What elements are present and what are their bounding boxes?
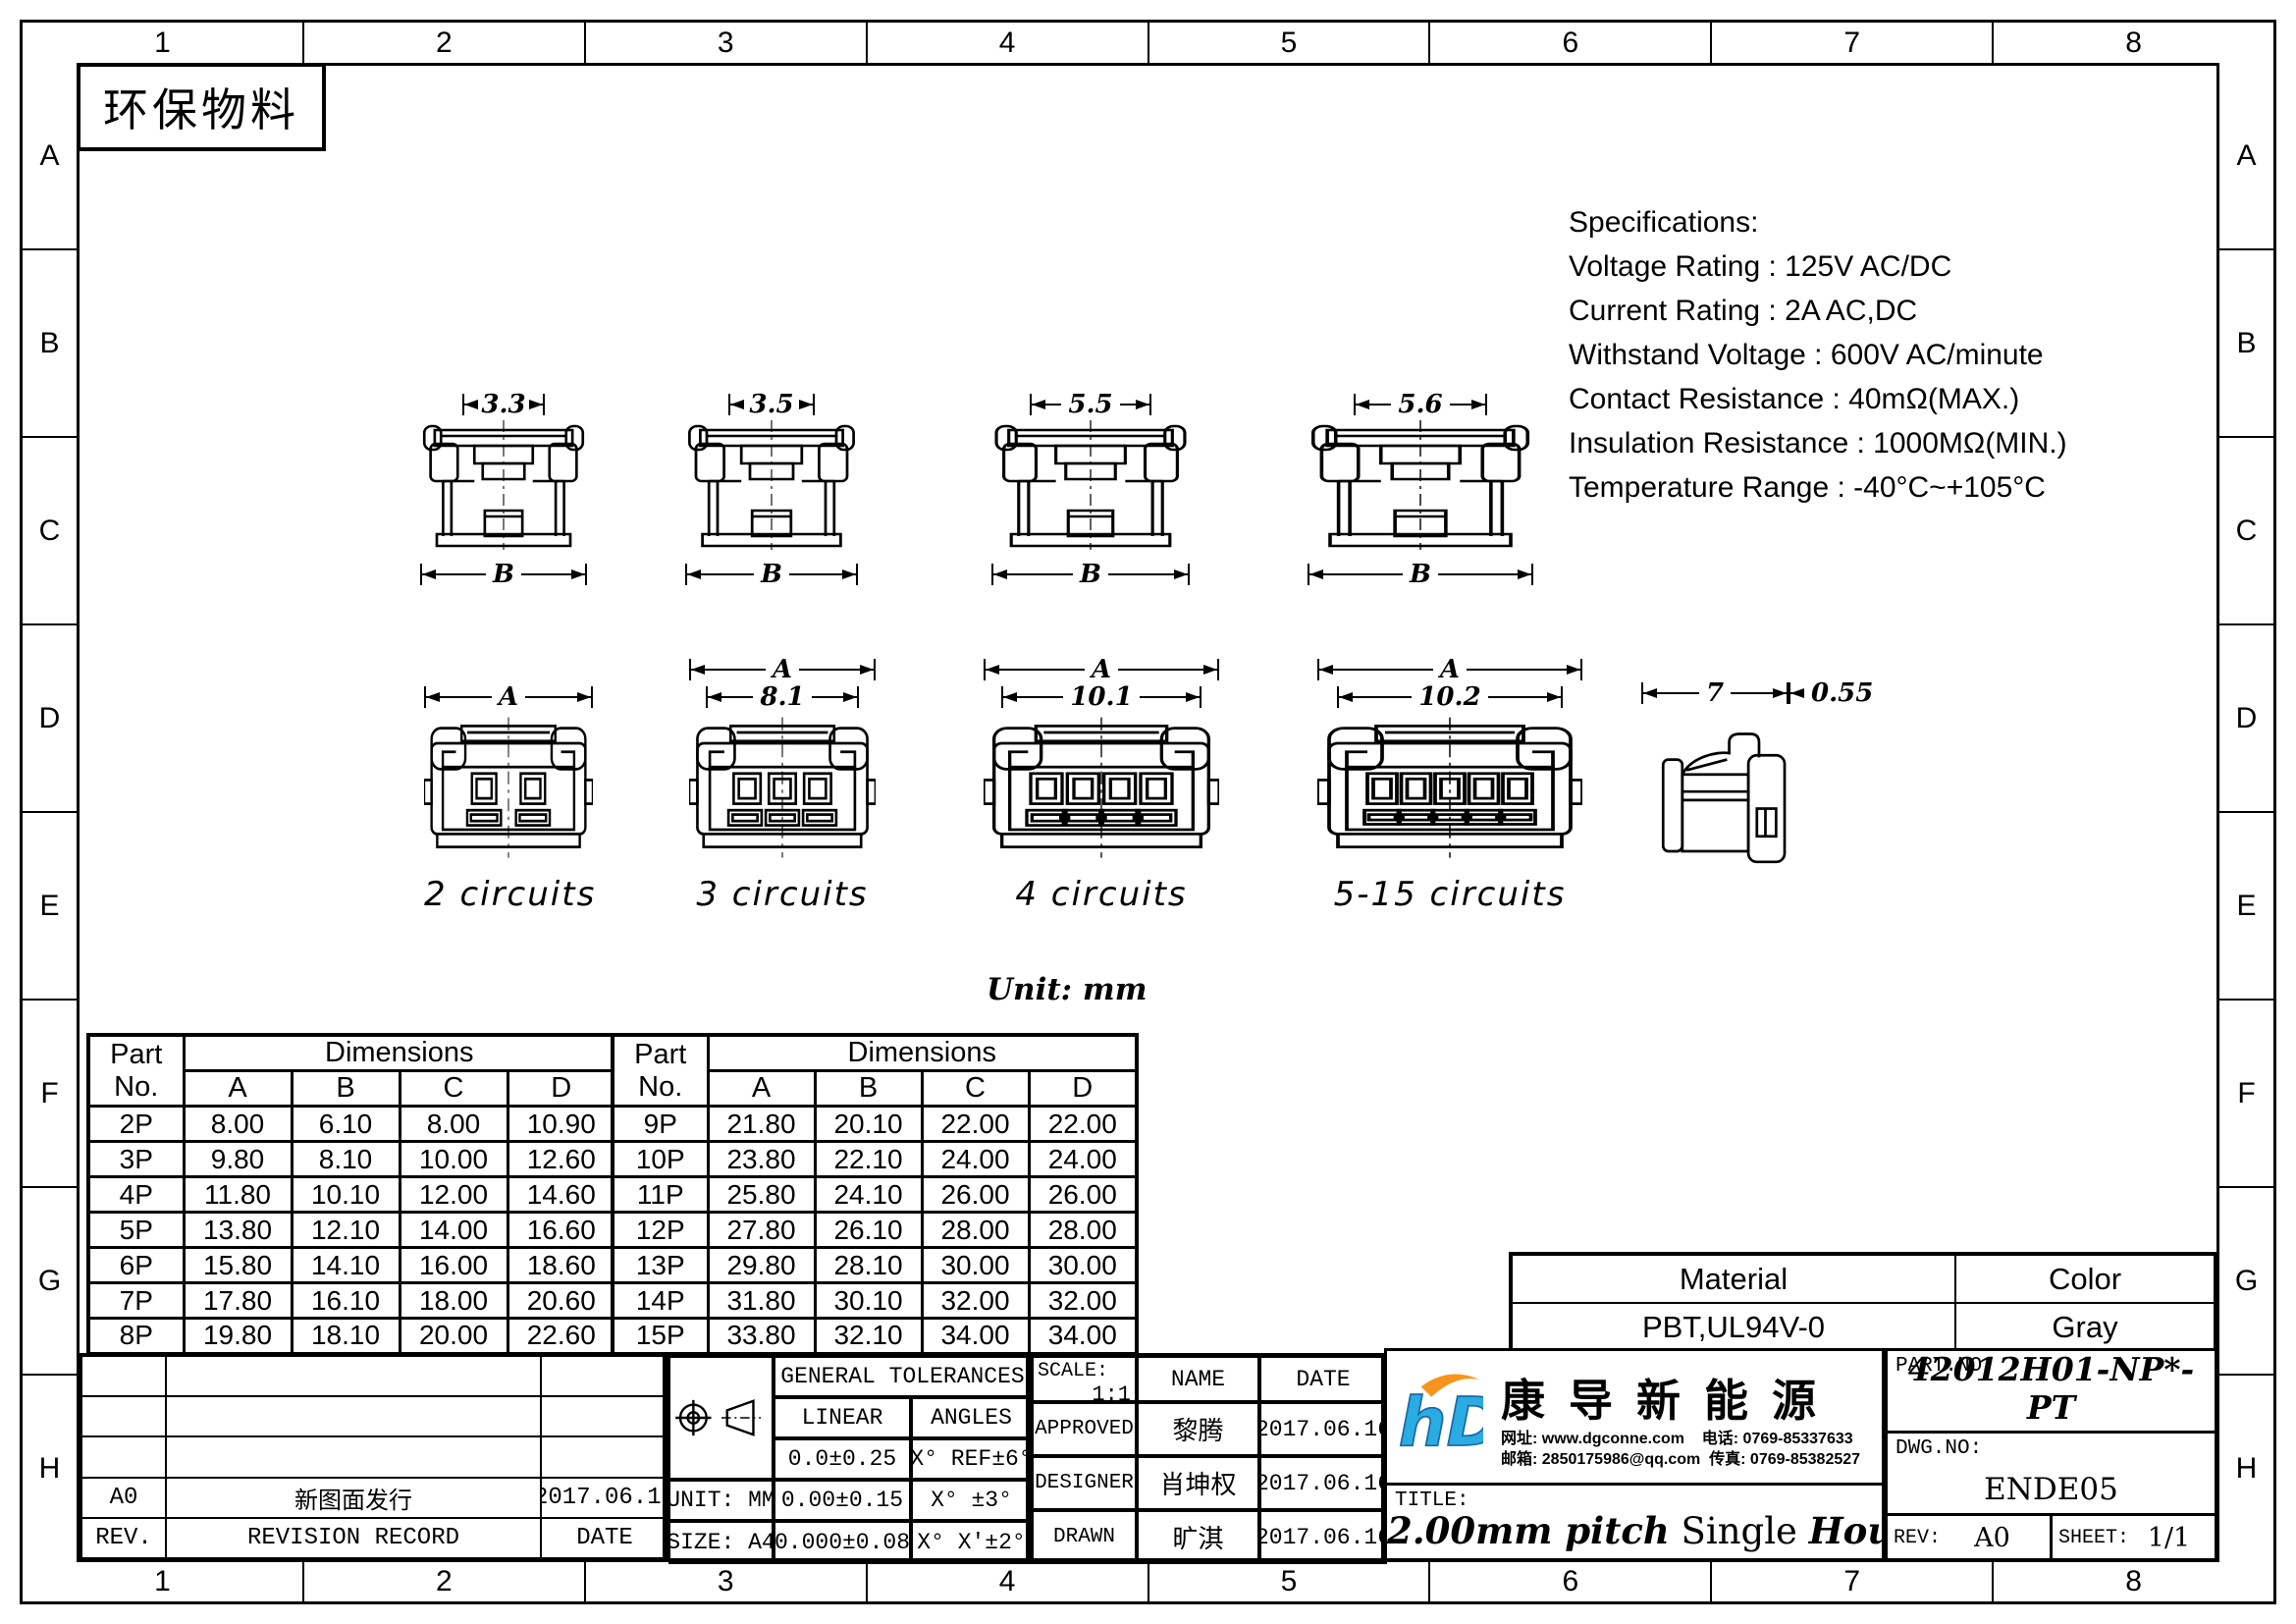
dim-arrow <box>1308 564 1309 585</box>
zone-label: 7 <box>1712 1561 1994 1601</box>
top-view-3ckt: 3.5 B <box>685 391 858 588</box>
approved-label: APPROVED <box>1032 1402 1137 1456</box>
zone-strip-top: 1 2 3 4 5 6 7 8 <box>23 23 2273 63</box>
dim-arrow <box>1317 659 1319 680</box>
projection-symbol-cell <box>668 1356 774 1480</box>
approved-name: 黎腾 <box>1137 1402 1259 1456</box>
zone-label: 4 <box>868 1561 1149 1601</box>
zone-label: E <box>2219 813 2273 1001</box>
col-header: D <box>1029 1071 1137 1107</box>
title-part-pitch: 2.00mm pitch <box>1387 1509 1670 1552</box>
table-row: 10P23.8022.1024.0024.00 <box>613 1142 1137 1177</box>
dim-line: A <box>424 683 593 711</box>
dim-arrow <box>591 686 593 708</box>
table-cell: 13P <box>613 1248 708 1283</box>
table-cell: 13.80 <box>184 1213 292 1248</box>
table-cell: 32.10 <box>815 1319 922 1354</box>
connector-top-view-drawing <box>685 418 858 556</box>
dim-arrow <box>874 659 876 680</box>
table-cell: 34.00 <box>922 1319 1029 1354</box>
connector-front-view-drawing <box>984 711 1219 862</box>
dim-label: A <box>492 682 525 712</box>
title-row: TITLE: 2.00mm pitch Single Housing <box>1387 1486 1882 1558</box>
rev-entry-rev: A0 <box>81 1478 166 1518</box>
col-header: B <box>292 1071 400 1107</box>
company-name: 康导新能源 <box>1501 1365 1860 1429</box>
rev-value: A0 <box>1974 1523 2010 1553</box>
connector-top-view-drawing <box>1308 418 1533 556</box>
table-cell: 8.00 <box>400 1107 507 1142</box>
view-caption: 5-15 circuits <box>1317 875 1582 914</box>
company-logo-icon: hD <box>1397 1368 1483 1466</box>
dim-line-seg <box>1309 573 1403 575</box>
color-value: Gray <box>1955 1303 2215 1351</box>
specifications-title: Specifications: <box>1569 200 2256 244</box>
partno-block: PART.NO: 42012H01-NP*-PT DWG.NO: ENDE05 … <box>1885 1348 2217 1561</box>
view-caption: 2 circuits <box>424 875 593 914</box>
table-cell: 14.60 <box>507 1177 615 1213</box>
table-row: 13P29.8028.1030.0030.00 <box>613 1248 1137 1283</box>
zone-label: 5 <box>1149 1561 1431 1601</box>
side-view: 7 0.55 <box>1641 679 1887 864</box>
col-header: D <box>507 1071 615 1107</box>
view-caption: 4 circuits <box>984 875 1219 914</box>
table-cell: 24.10 <box>815 1177 922 1213</box>
unit-cell: UNIT: MM <box>668 1480 774 1521</box>
dim-label: B <box>486 560 521 589</box>
table-cell: 11.80 <box>184 1177 292 1213</box>
dim-arrow <box>1580 659 1582 680</box>
dim-arrow <box>1217 659 1219 680</box>
spec-line: Temperature Range : -40°C~+105°C <box>1569 465 2256 510</box>
table-cell: 5P <box>88 1213 184 1248</box>
table-cell: 16.60 <box>507 1213 615 1248</box>
rev-entry-desc: 新图面发行 <box>166 1478 541 1518</box>
company-phone: 电话: 0769-85337633 <box>1702 1431 1853 1447</box>
zone-label: 3 <box>586 1561 868 1601</box>
table-cell: 8.10 <box>292 1142 400 1177</box>
size-cell: SIZE: A4 <box>668 1521 774 1564</box>
table-cell: 12.10 <box>292 1213 400 1248</box>
table-cell: 10.10 <box>292 1177 400 1213</box>
table-header-part: PartNo. <box>613 1035 708 1107</box>
zone-label: 8 <box>1994 1561 2273 1601</box>
zone-label: 2 <box>304 23 586 63</box>
table-cell: 32.00 <box>1029 1283 1137 1319</box>
table-row: 11P25.8024.1026.0026.00 <box>613 1177 1137 1213</box>
rev-footer-date: DATE <box>541 1518 668 1558</box>
dim-label: 5.5 <box>1061 390 1119 419</box>
table-cell: 4P <box>88 1177 184 1213</box>
dim-label: B <box>1073 560 1108 589</box>
table-cell: 16.10 <box>292 1283 400 1319</box>
dim-label: B <box>1403 560 1438 589</box>
dim-arrow <box>1561 686 1563 708</box>
color-header: Color <box>1955 1255 2215 1303</box>
table-cell: 11P <box>613 1177 708 1213</box>
table-cell: 8P <box>88 1319 184 1354</box>
dim-arrow <box>1641 682 1643 704</box>
projection-symbol-icon <box>674 1397 769 1438</box>
dim-arrow <box>1354 394 1356 415</box>
front-view-2ckt: A 2 circuits <box>424 656 593 914</box>
table-cell: 16.00 <box>400 1248 507 1283</box>
front-view-5-15ckt: A 10.2 <box>1317 656 1582 914</box>
dim-line: 7 <box>1641 679 1789 707</box>
linear-tol: 0.00±0.15 <box>774 1480 911 1521</box>
material-color-table: Material Color PBT,UL94V-0 Gray <box>1509 1252 2217 1354</box>
dim-line-seg <box>986 669 1085 671</box>
eco-material-stamp: 环保物料 <box>77 63 326 151</box>
sheet-label: SHEET: <box>2058 1527 2129 1549</box>
rev-section: REV: A0 <box>1888 1516 2053 1559</box>
dim-arrow <box>1001 686 1003 708</box>
table-cell: 6P <box>88 1248 184 1283</box>
angle-tol: X° REF±6° <box>911 1438 1032 1480</box>
zone-label: 8 <box>1994 23 2273 63</box>
table-header-dimensions: Dimensions <box>184 1035 615 1071</box>
col-header: B <box>815 1071 922 1107</box>
dim-label: A <box>766 655 799 684</box>
table-cell: 22.00 <box>922 1107 1029 1142</box>
connector-top-view-drawing <box>991 418 1190 556</box>
scale-value: 1:1 <box>1092 1382 1131 1402</box>
table-cell: 9P <box>613 1107 708 1142</box>
dim-line: 10.2 <box>1337 683 1563 711</box>
drawn-label: DRAWN <box>1032 1510 1137 1564</box>
zone-label: 1 <box>23 1561 304 1601</box>
table-cell: 20.00 <box>400 1319 507 1354</box>
dim-line-seg <box>1467 669 1580 671</box>
angles-header: ANGLES <box>911 1397 1032 1438</box>
zone-strip-bottom: 1 2 3 4 5 6 7 8 <box>23 1561 2273 1601</box>
table-cell: 33.80 <box>708 1319 815 1354</box>
table-cell: 18.00 <box>400 1283 507 1319</box>
zone-label: H <box>23 1376 77 1561</box>
dim-arrow <box>857 686 859 708</box>
table-row: 14P31.8030.1032.0032.00 <box>613 1283 1137 1319</box>
spec-line: Withstand Voltage : 600V AC/minute <box>1569 333 2256 377</box>
date-header: DATE <box>1259 1356 1387 1402</box>
dim-line: A <box>1317 656 1582 683</box>
table-cell: 20.60 <box>507 1283 615 1319</box>
table-cell: 7P <box>88 1283 184 1319</box>
part-label: Part <box>110 1039 162 1070</box>
table-cell: 12.60 <box>507 1142 615 1177</box>
dim-arrow <box>1337 686 1339 708</box>
partno-value: 42012H01-NP*-PT <box>1888 1350 2215 1427</box>
connector-side-view-drawing <box>1641 715 1828 864</box>
table-row: 7P17.8016.1018.0020.60 <box>88 1283 615 1319</box>
approval-block: SCALE: 1:1 NAME DATE APPROVED 黎腾 2017.06… <box>1029 1353 1384 1561</box>
table-cell: 22.60 <box>507 1319 615 1354</box>
dim-label: 8.1 <box>753 682 811 712</box>
zone-label: 6 <box>1430 23 1712 63</box>
rev-footer-rev: REV. <box>81 1518 166 1558</box>
col-header: A <box>184 1071 292 1107</box>
dim-line: A <box>689 656 876 683</box>
dim-arrow <box>813 394 815 415</box>
dwgno-label: DWG.NO: <box>1896 1437 1982 1460</box>
linear-tol: 0.000±0.08 <box>774 1521 911 1564</box>
rev-cell-empty <box>81 1436 166 1477</box>
col-header: C <box>400 1071 507 1107</box>
designer-name: 肖坤权 <box>1137 1456 1259 1510</box>
table-cell: 10.90 <box>507 1107 615 1142</box>
designer-label: DESIGNER <box>1032 1456 1137 1510</box>
connector-front-view-drawing <box>424 711 593 862</box>
table-header-dimensions: Dimensions <box>708 1035 1137 1071</box>
table-cell: 34.00 <box>1029 1319 1137 1354</box>
dim-line-seg <box>1118 669 1217 671</box>
spec-line: Contact Resistance : 40mΩ(MAX.) <box>1569 377 2256 421</box>
table-cell: 31.80 <box>708 1283 815 1319</box>
table-cell: 6.10 <box>292 1107 400 1142</box>
dim-arrow <box>1485 394 1487 415</box>
table-cell: 26.00 <box>1029 1177 1137 1213</box>
dim-arrow <box>543 394 545 415</box>
company-contact-line2: 邮箱: 2850175986@qq.com 传真: 0769-85382527 <box>1501 1449 1860 1470</box>
table-cell: 30.10 <box>815 1283 922 1319</box>
dim-arrow <box>1149 394 1151 415</box>
designer-date: 2017.06.16 <box>1259 1456 1387 1510</box>
rev-cell-empty <box>81 1356 166 1396</box>
rev-cell-empty <box>541 1356 668 1396</box>
dim-line: B <box>685 561 858 588</box>
table-row: 3P9.808.1010.0012.60 <box>88 1142 615 1177</box>
table-cell: 23.80 <box>708 1142 815 1177</box>
dimension-table-right: PartNo. Dimensions A B C D 9P21.8020.102… <box>611 1033 1139 1356</box>
dim-label: 3.5 <box>742 390 800 419</box>
zone-label: 7 <box>1712 23 1994 63</box>
zone-label: H <box>2219 1376 2273 1561</box>
dim-line: 3.5 <box>728 391 815 418</box>
spec-line: Current Rating : 2A AC,DC <box>1569 289 2256 333</box>
dim-line-seg <box>1319 669 1433 671</box>
table-cell: 2P <box>88 1107 184 1142</box>
dim-line: 0.55 <box>1789 679 1885 707</box>
table-cell: 17.80 <box>184 1283 292 1319</box>
dwgno-section: DWG.NO: ENDE05 <box>1888 1434 2215 1516</box>
table-row: 6P15.8014.1016.0018.60 <box>88 1248 615 1283</box>
table-row: 4P11.8010.1012.0014.60 <box>88 1177 615 1213</box>
dim-arrow <box>420 564 422 585</box>
dimension-table-left: PartNo. Dimensions A B C D 2P8.006.108.0… <box>86 1033 617 1356</box>
zone-label: 4 <box>868 23 1149 63</box>
dim-line: 5.6 <box>1354 391 1487 418</box>
dim-label: 5.6 <box>1391 390 1449 419</box>
dim-label: 10.2 <box>1412 682 1487 712</box>
zone-label: 3 <box>586 23 868 63</box>
rev-cell-empty <box>541 1436 668 1477</box>
table-cell: 30.00 <box>922 1248 1029 1283</box>
view-caption: 3 circuits <box>689 875 876 914</box>
zone-label: A <box>23 63 77 250</box>
table-cell: 28.00 <box>922 1213 1029 1248</box>
table-cell: 19.80 <box>184 1319 292 1354</box>
table-row: 5P13.8012.1014.0016.60 <box>88 1213 615 1248</box>
top-view-5-15ckt: 5.6 B <box>1308 391 1533 588</box>
zone-label: 6 <box>1430 1561 1712 1601</box>
table-row: 12P27.8026.1028.0028.00 <box>613 1213 1137 1248</box>
angle-tol: X° ±3° <box>911 1480 1032 1521</box>
no-label: No. <box>114 1071 158 1103</box>
table-cell: 12P <box>613 1213 708 1248</box>
dim-line: B <box>1308 561 1533 588</box>
linear-tol: 0.0±0.25 <box>774 1438 911 1480</box>
table-cell: 3P <box>88 1142 184 1177</box>
rev-cell-empty <box>166 1396 541 1436</box>
dim-arrow <box>984 659 986 680</box>
tolerance-header: GENERAL TOLERANCES <box>774 1356 1032 1397</box>
dim-arrow <box>585 564 587 585</box>
dim-arrow <box>1188 564 1190 585</box>
top-view-2ckt: 3.3 B <box>420 391 587 588</box>
front-view-4ckt: A 10.1 <box>984 656 1219 914</box>
dim-line: B <box>420 561 587 588</box>
connector-top-view-drawing <box>420 418 587 556</box>
table-cell: 26.00 <box>922 1177 1029 1213</box>
dim-arrow <box>462 394 464 415</box>
table-cell: 18.60 <box>507 1248 615 1283</box>
table-cell: 14.00 <box>400 1213 507 1248</box>
sheet-section: SHEET: 1/1 <box>2053 1516 2215 1559</box>
zone-label: G <box>2219 1188 2273 1376</box>
table-cell: 24.00 <box>922 1142 1029 1177</box>
material-value: PBT,UL94V-0 <box>1512 1303 1955 1351</box>
zone-label: B <box>23 250 77 438</box>
sheet-value: 1/1 <box>2148 1523 2190 1553</box>
dim-line: 3.3 <box>462 391 545 418</box>
dim-line: 8.1 <box>706 683 859 711</box>
company-website: 网址: www.dgconne.com <box>1501 1431 1684 1447</box>
table-cell: 14.10 <box>292 1248 400 1283</box>
table-cell: 22.10 <box>815 1142 922 1177</box>
table-cell: 29.80 <box>708 1248 815 1283</box>
dim-label: 3.3 <box>474 390 532 419</box>
scale-label: SCALE: <box>1038 1360 1108 1382</box>
zone-strip-left: A B C D E F G H <box>23 63 77 1561</box>
table-cell: 27.80 <box>708 1213 815 1248</box>
table-cell: 14P <box>613 1283 708 1319</box>
linear-header: LINEAR <box>774 1397 911 1438</box>
top-view-4ckt: 5.5 B <box>991 391 1190 588</box>
drawn-name: 旷淇 <box>1137 1510 1259 1564</box>
dwgno-value: ENDE05 <box>1888 1472 2215 1507</box>
table-cell: 20.10 <box>815 1107 922 1142</box>
table-header-part: PartNo. <box>88 1035 184 1107</box>
zone-label: 2 <box>304 1561 586 1601</box>
zone-label: F <box>2219 1001 2273 1188</box>
dim-line: 10.1 <box>1001 683 1201 711</box>
dim-line: B <box>991 561 1190 588</box>
table-cell: 18.10 <box>292 1319 400 1354</box>
dim-line: A <box>984 656 1219 683</box>
table-cell: 25.80 <box>708 1177 815 1213</box>
table-cell: 10P <box>613 1142 708 1177</box>
spec-line: Voltage Rating : 125V AC/DC <box>1569 244 2256 289</box>
title-part-single: Single <box>1682 1510 1797 1552</box>
table-cell: 12.00 <box>400 1177 507 1213</box>
table-cell: 15.80 <box>184 1248 292 1283</box>
rev-cell-empty <box>166 1436 541 1477</box>
tolerance-block: UNIT: MM SIZE: A4 GENERAL TOLERANCES LIN… <box>666 1353 1029 1561</box>
table-row: 9P21.8020.1022.0022.00 <box>613 1107 1137 1142</box>
dim-arrow <box>424 686 426 708</box>
scale-cell: SCALE: 1:1 <box>1032 1356 1137 1402</box>
table-cell: 10.00 <box>400 1142 507 1177</box>
zone-label: 5 <box>1149 23 1431 63</box>
dim-label: A <box>1085 655 1118 684</box>
dim-arrow <box>728 394 730 415</box>
dim-arrow <box>856 564 858 585</box>
part-label: Part <box>634 1039 686 1070</box>
dim-arrow <box>991 564 993 585</box>
rev-cell-empty <box>541 1396 668 1436</box>
table-cell: 8.00 <box>184 1107 292 1142</box>
drawing-sheet: 1 2 3 4 5 6 7 8 1 2 3 4 5 6 7 8 A B C D … <box>0 0 2296 1624</box>
dim-label: 10.1 <box>1063 682 1139 712</box>
dim-arrow <box>685 564 687 585</box>
dim-label: A <box>1433 655 1467 684</box>
dim-arrow <box>1789 682 1790 704</box>
no-label: No. <box>638 1071 682 1103</box>
company-title-block: hD 康导新能源 网址: www.dgconne.com 电话: 0769-85… <box>1384 1348 1885 1561</box>
dim-label: B <box>754 560 789 589</box>
name-header: NAME <box>1137 1356 1259 1402</box>
table-row: 8P19.8018.1020.0022.60 <box>88 1319 615 1354</box>
table-cell: 9.80 <box>184 1142 292 1177</box>
dim-arrow <box>1531 564 1533 585</box>
table-cell: 26.10 <box>815 1213 922 1248</box>
table-cell: 24.00 <box>1029 1142 1137 1177</box>
connector-front-view-drawing <box>1317 711 1582 862</box>
rev-cell-empty <box>166 1356 541 1396</box>
rev-label: REV: <box>1894 1527 1941 1549</box>
rev-sheet-row: REV: A0 SHEET: 1/1 <box>1888 1516 2215 1559</box>
svg-text:hD: hD <box>1399 1383 1483 1462</box>
rev-entry-date: 2017.06.16 <box>541 1478 668 1518</box>
table-cell: 22.00 <box>1029 1107 1137 1142</box>
specifications-block: Specifications: Voltage Rating : 125V AC… <box>1569 200 2256 510</box>
material-header: Material <box>1512 1255 1955 1303</box>
zone-label: G <box>23 1188 77 1376</box>
table-cell: 21.80 <box>708 1107 815 1142</box>
company-fax: 传真: 0769-85382527 <box>1709 1451 1860 1468</box>
zone-label: 1 <box>23 23 304 63</box>
table-cell: 28.10 <box>815 1248 922 1283</box>
company-email: 邮箱: 2850175986@qq.com <box>1501 1451 1700 1468</box>
company-banner: hD 康导新能源 网址: www.dgconne.com 电话: 0769-85… <box>1387 1351 1882 1486</box>
drawn-date: 2017.06.16 <box>1259 1510 1387 1564</box>
angle-tol: X° X'±2° <box>911 1521 1032 1564</box>
zone-label: C <box>23 438 77 625</box>
zone-label: E <box>23 813 77 1001</box>
table-row: 15P33.8032.1034.0034.00 <box>613 1319 1137 1354</box>
zone-label: D <box>2219 625 2273 813</box>
rev-footer-record: REVISION RECORD <box>166 1518 541 1558</box>
rev-cell-empty <box>81 1396 166 1436</box>
table-cell: 32.00 <box>922 1283 1029 1319</box>
approved-date: 2017.06.16 <box>1259 1402 1387 1456</box>
connector-front-view-drawing <box>689 711 876 862</box>
dim-arrow <box>689 659 691 680</box>
table-cell: 15P <box>613 1319 708 1354</box>
table-cell: 28.00 <box>1029 1213 1137 1248</box>
revision-table: A0 新图面发行 2017.06.16 REV. REVISION RECORD… <box>79 1353 666 1561</box>
drawing-title: 2.00mm pitch Single Housing <box>1387 1509 1882 1552</box>
zone-label: F <box>23 1001 77 1188</box>
